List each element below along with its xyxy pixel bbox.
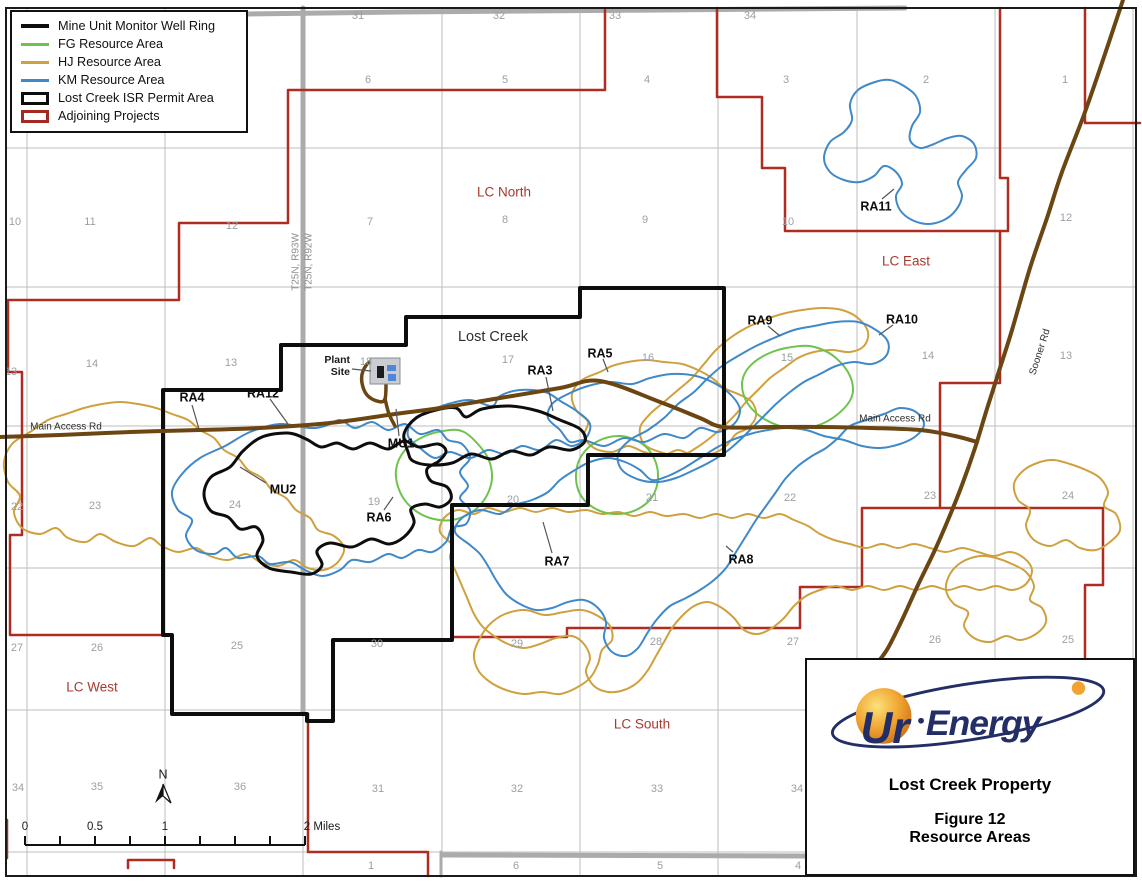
section-number: 26 [91, 642, 103, 654]
section-number: 13 [225, 357, 237, 369]
section-number: 2 [923, 74, 929, 86]
section-number: 22 [784, 492, 796, 504]
legend-item-label: KM Resource Area [58, 73, 164, 87]
section-number: 17 [502, 354, 514, 366]
map-label: RA11 [860, 199, 891, 213]
label-leader-line [543, 522, 552, 553]
section-number: 1 [368, 860, 374, 872]
adjoining-boundary-s [308, 714, 428, 876]
section-number: 33 [651, 783, 663, 795]
section-number: 7 [367, 216, 373, 228]
plant-site-icon [377, 366, 384, 378]
map-label: LC South [614, 717, 670, 732]
map-label: LC East [882, 254, 930, 269]
section-number: 12 [1060, 212, 1072, 224]
section-number: 24 [229, 499, 241, 511]
legend-item: Mine Unit Monitor Well Ring [20, 17, 238, 35]
legend-item-label: Adjoining Projects [58, 109, 160, 123]
scale-bar-label: 0 [22, 821, 28, 833]
section-number: 14 [86, 358, 98, 370]
section-number: 10 [782, 216, 794, 228]
scale-bar-label: 2 Miles [304, 821, 341, 833]
section-number: 11 [84, 216, 95, 228]
legend-item-label: FG Resource Area [58, 37, 163, 51]
map-label: RA6 [366, 510, 391, 524]
label-leader-line [726, 546, 733, 552]
map-label: T25N, R93W [291, 233, 302, 291]
hj-area-s29 [474, 610, 613, 694]
logo-dot-icon [918, 718, 924, 724]
km-area-ra78 [455, 408, 924, 656]
adjoining-boundary-n [717, 8, 1000, 231]
scale-bar-label: 1 [162, 821, 168, 833]
section-number: 27 [11, 642, 23, 654]
section-number: 20 [507, 494, 519, 506]
map-label: RA12 [247, 386, 279, 400]
section-number: 6 [513, 860, 519, 872]
label-leader-line [270, 399, 288, 424]
legend-swatch-icon [20, 61, 50, 64]
label-leader-line [384, 497, 393, 510]
section-number: 27 [787, 636, 799, 648]
km-area-ra12 [172, 420, 470, 576]
section-number: 33 [609, 10, 621, 22]
adjoining-boundary-sw-notch [128, 860, 174, 868]
section-number: 26 [929, 634, 941, 646]
section-number: 4 [795, 860, 801, 872]
section-number: 31 [352, 10, 364, 22]
map-title: Lost Creek Property [807, 775, 1133, 795]
section-number: 5 [502, 74, 508, 86]
section-number: 24 [1062, 490, 1074, 502]
map-label: Main Access Rd [30, 422, 102, 433]
gray-road-bottom [443, 855, 807, 856]
map-label: RA7 [544, 554, 569, 568]
plant-site-icon [388, 374, 396, 381]
ur-energy-logo: Ur Energy [820, 666, 1120, 762]
map-label: RA9 [747, 313, 772, 327]
scale-bar-label: 0.5 [87, 821, 103, 833]
section-number: 6 [365, 74, 371, 86]
section-number: 32 [493, 10, 505, 22]
map-label: Sooner Rd [1028, 328, 1053, 377]
section-number: 19 [368, 496, 380, 508]
legend-item-label: Mine Unit Monitor Well Ring [58, 19, 215, 33]
map-label: LC West [66, 680, 118, 695]
legend-item: FG Resource Area [20, 35, 238, 53]
map-label: T25N, R92W [304, 233, 315, 291]
legend-swatch-icon [20, 24, 50, 28]
figure-number: Figure 12 [807, 811, 1133, 829]
legend-item: KM Resource Area [20, 71, 238, 89]
section-number: 28 [650, 636, 662, 648]
map-label: RA8 [728, 552, 753, 566]
section-number: 4 [644, 74, 650, 86]
section-number: 15 [781, 352, 793, 364]
map-label: Site [331, 366, 350, 378]
section-number: 14 [922, 350, 934, 362]
section-number: 12 [226, 220, 238, 232]
map-label: RA4 [179, 390, 204, 404]
section-number: 1 [1062, 74, 1068, 86]
section-number: 9 [642, 214, 648, 226]
section-number: 34 [791, 783, 803, 795]
map-label: MU2 [270, 482, 296, 496]
title-box: Ur Energy Lost Creek Property Figure 12 … [805, 658, 1135, 876]
map-label: RA5 [587, 346, 612, 360]
legend-swatch-icon [20, 79, 50, 82]
label-leader-line [879, 325, 893, 335]
legend-item: HJ Resource Area [20, 53, 238, 71]
logo-orange-dot-icon [1072, 681, 1085, 694]
map-label: Lost Creek [458, 329, 529, 345]
section-number: 16 [642, 352, 654, 364]
legend-item-label: HJ Resource Area [58, 55, 161, 69]
section-number: 34 [744, 10, 756, 22]
map-label: RA10 [886, 312, 918, 326]
legend-item: Lost Creek ISR Permit Area [20, 89, 238, 107]
label-leader-line [882, 189, 894, 199]
label-leader-line [768, 326, 780, 336]
section-number: 23 [924, 490, 936, 502]
logo-energy-text: Energy [926, 703, 1044, 743]
logo-ur-text: Ur [861, 704, 913, 753]
section-number: 5 [657, 860, 663, 872]
north-arrow-label: N [158, 767, 167, 781]
section-number: 10 [9, 216, 21, 228]
section-number: 25 [1062, 634, 1074, 646]
section-number: 32 [511, 783, 523, 795]
legend-item-label: Lost Creek ISR Permit Area [58, 91, 214, 105]
section-number: 18 [360, 356, 372, 368]
section-number: 34 [12, 782, 24, 794]
legend-swatch-icon [20, 110, 50, 123]
legend-item: Adjoining Projects [20, 107, 238, 125]
legend-swatch-icon [20, 43, 50, 46]
north-arrow-icon [155, 784, 163, 803]
legend: Mine Unit Monitor Well RingFG Resource A… [10, 10, 248, 133]
map-label: Main Access Rd [859, 414, 931, 425]
adjoining-boundary-se [452, 508, 940, 637]
section-number: 36 [234, 781, 246, 793]
main-access-road [0, 381, 977, 442]
section-number: 21 [646, 492, 658, 504]
map-figure: 3132333465432110111278910121314131817161… [0, 0, 1142, 882]
section-number: 8 [502, 214, 508, 226]
section-number: 3 [783, 74, 789, 86]
map-label: MU1 [388, 436, 414, 450]
section-number: 13 [1060, 350, 1072, 362]
section-number: 22 [11, 501, 23, 513]
section-number: 23 [89, 500, 101, 512]
map-label: LC North [477, 185, 531, 200]
hj-area-e1 [1014, 460, 1120, 550]
section-number: 35 [91, 781, 103, 793]
legend-items: Mine Unit Monitor Well RingFG Resource A… [20, 17, 238, 125]
section-number: 29 [511, 638, 523, 650]
section-number: 30 [371, 638, 383, 650]
north-arrow-icon [163, 784, 171, 803]
section-number: 25 [231, 640, 243, 652]
km-area-ra11 [824, 80, 977, 224]
legend-swatch-icon [20, 92, 50, 105]
plant-site-icon [387, 365, 396, 371]
map-label: Plant [324, 354, 350, 366]
section-number: 31 [372, 783, 384, 795]
figure-subtitle: Resource Areas [807, 829, 1133, 847]
map-label: RA3 [527, 363, 552, 377]
label-leader-line [240, 467, 266, 483]
